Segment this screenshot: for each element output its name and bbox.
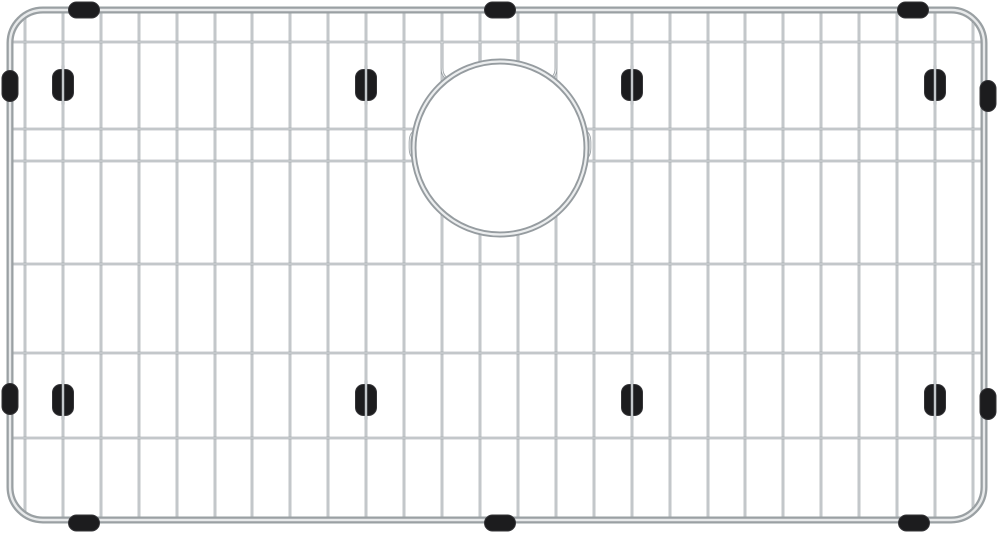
right-edge-bumper bbox=[980, 389, 996, 420]
left-edge-bumper bbox=[2, 71, 18, 102]
top-edge-bumper bbox=[898, 2, 929, 18]
top-edge-bumper bbox=[485, 2, 516, 18]
top-edge-bumper bbox=[69, 2, 100, 18]
sink-grid-svg bbox=[0, 0, 1000, 536]
bottom-edge-bumper bbox=[69, 515, 100, 531]
left-edge-bumper bbox=[2, 384, 18, 415]
bottom-edge-bumper bbox=[899, 515, 930, 531]
product-photo bbox=[0, 0, 1000, 536]
right-edge-bumper bbox=[980, 81, 996, 112]
bottom-edge-bumper bbox=[485, 515, 516, 531]
